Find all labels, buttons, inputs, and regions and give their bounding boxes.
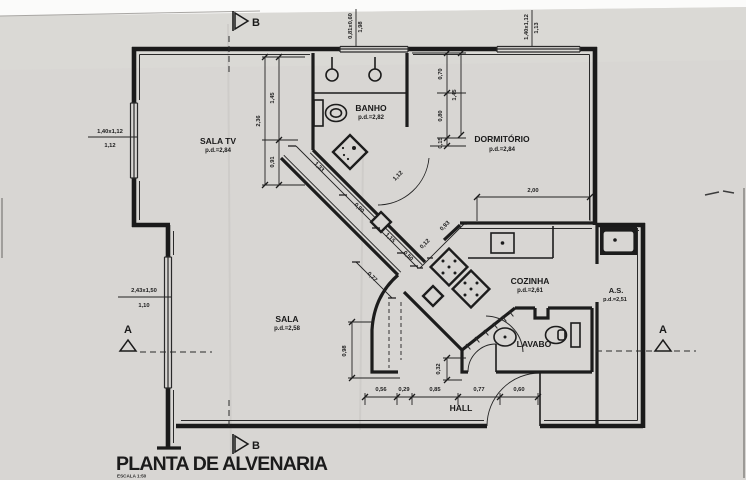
dim-label: 0,60 (513, 387, 524, 393)
room-label-sala-tv: SALA TV (200, 136, 236, 146)
room-label-sala: SALA (275, 314, 298, 324)
dim-label: 2,00 (527, 188, 538, 194)
dim-label: 0,70 (438, 68, 444, 79)
dim-label: 0,85 (429, 387, 441, 393)
room-pd-sala-tv: p.d.=2,84 (205, 148, 232, 154)
svg-text:1,40x1,12: 1,40x1,12 (524, 14, 530, 40)
room-pd-sala: p.d.=2,58 (274, 326, 301, 332)
dim-label: 0,80 (438, 110, 444, 121)
svg-text:1,13: 1,13 (534, 22, 540, 34)
room-pd-dormitorio: p.d.=2,84 (489, 147, 516, 153)
dim-label: 0,32 (436, 363, 442, 374)
svg-text:1,40x1,12: 1,40x1,12 (97, 129, 123, 135)
as-laundry-tank (600, 227, 637, 255)
dim-label: 0,56 (375, 387, 387, 393)
dim-label: 0,77 (473, 387, 484, 393)
svg-text:A: A (659, 324, 667, 336)
dim-label: 1,45 (452, 89, 458, 101)
svg-text:1,12: 1,12 (104, 143, 115, 149)
floor-plan-svg: 2,36 1,45 0,91 0,70 0,80 0,15 1,45 2,00 … (0, 0, 746, 480)
room-label-lavabo: LAVABO (517, 339, 552, 349)
svg-text:B: B (252, 17, 260, 29)
room-pd-cozinha: p.d.=2,61 (517, 288, 544, 294)
scanned-floor-plan: 2,36 1,45 0,91 0,70 0,80 0,15 1,45 2,00 … (0, 0, 746, 480)
room-label-dormitorio: DORMITÓRIO (474, 133, 530, 144)
plan-scale: ESCALA 1:50 (117, 474, 147, 479)
room-label-as: A.S. (609, 286, 624, 295)
dim-label: 0,91 (270, 156, 276, 168)
room-pd-banho: p.d.=2,82 (358, 115, 385, 121)
svg-text:1,98: 1,98 (358, 21, 364, 33)
dim-label: 0,15 (438, 137, 444, 149)
svg-text:B: B (252, 440, 260, 452)
svg-text:0,81x0,60: 0,81x0,60 (348, 13, 354, 39)
svg-text:2,43x1,50: 2,43x1,50 (131, 288, 157, 294)
dim-label: 0,29 (398, 387, 410, 393)
svg-text:A: A (124, 324, 132, 336)
room-label-hall: HALL (450, 403, 473, 413)
room-label-cozinha: COZINHA (511, 276, 550, 286)
dim-label: 0,98 (342, 345, 348, 357)
svg-text:1,10: 1,10 (138, 303, 149, 309)
dim-label: 1,45 (270, 92, 276, 104)
dim-label: 2,36 (256, 115, 262, 127)
room-pd-as: p.d.=2,51 (603, 297, 627, 303)
room-label-banho: BANHO (355, 103, 387, 113)
plan-title: PLANTA DE ALVENARIA (116, 453, 328, 475)
drawing-title: PLANTA DE ALVENARIA ESCALA 1:50 (116, 453, 328, 479)
